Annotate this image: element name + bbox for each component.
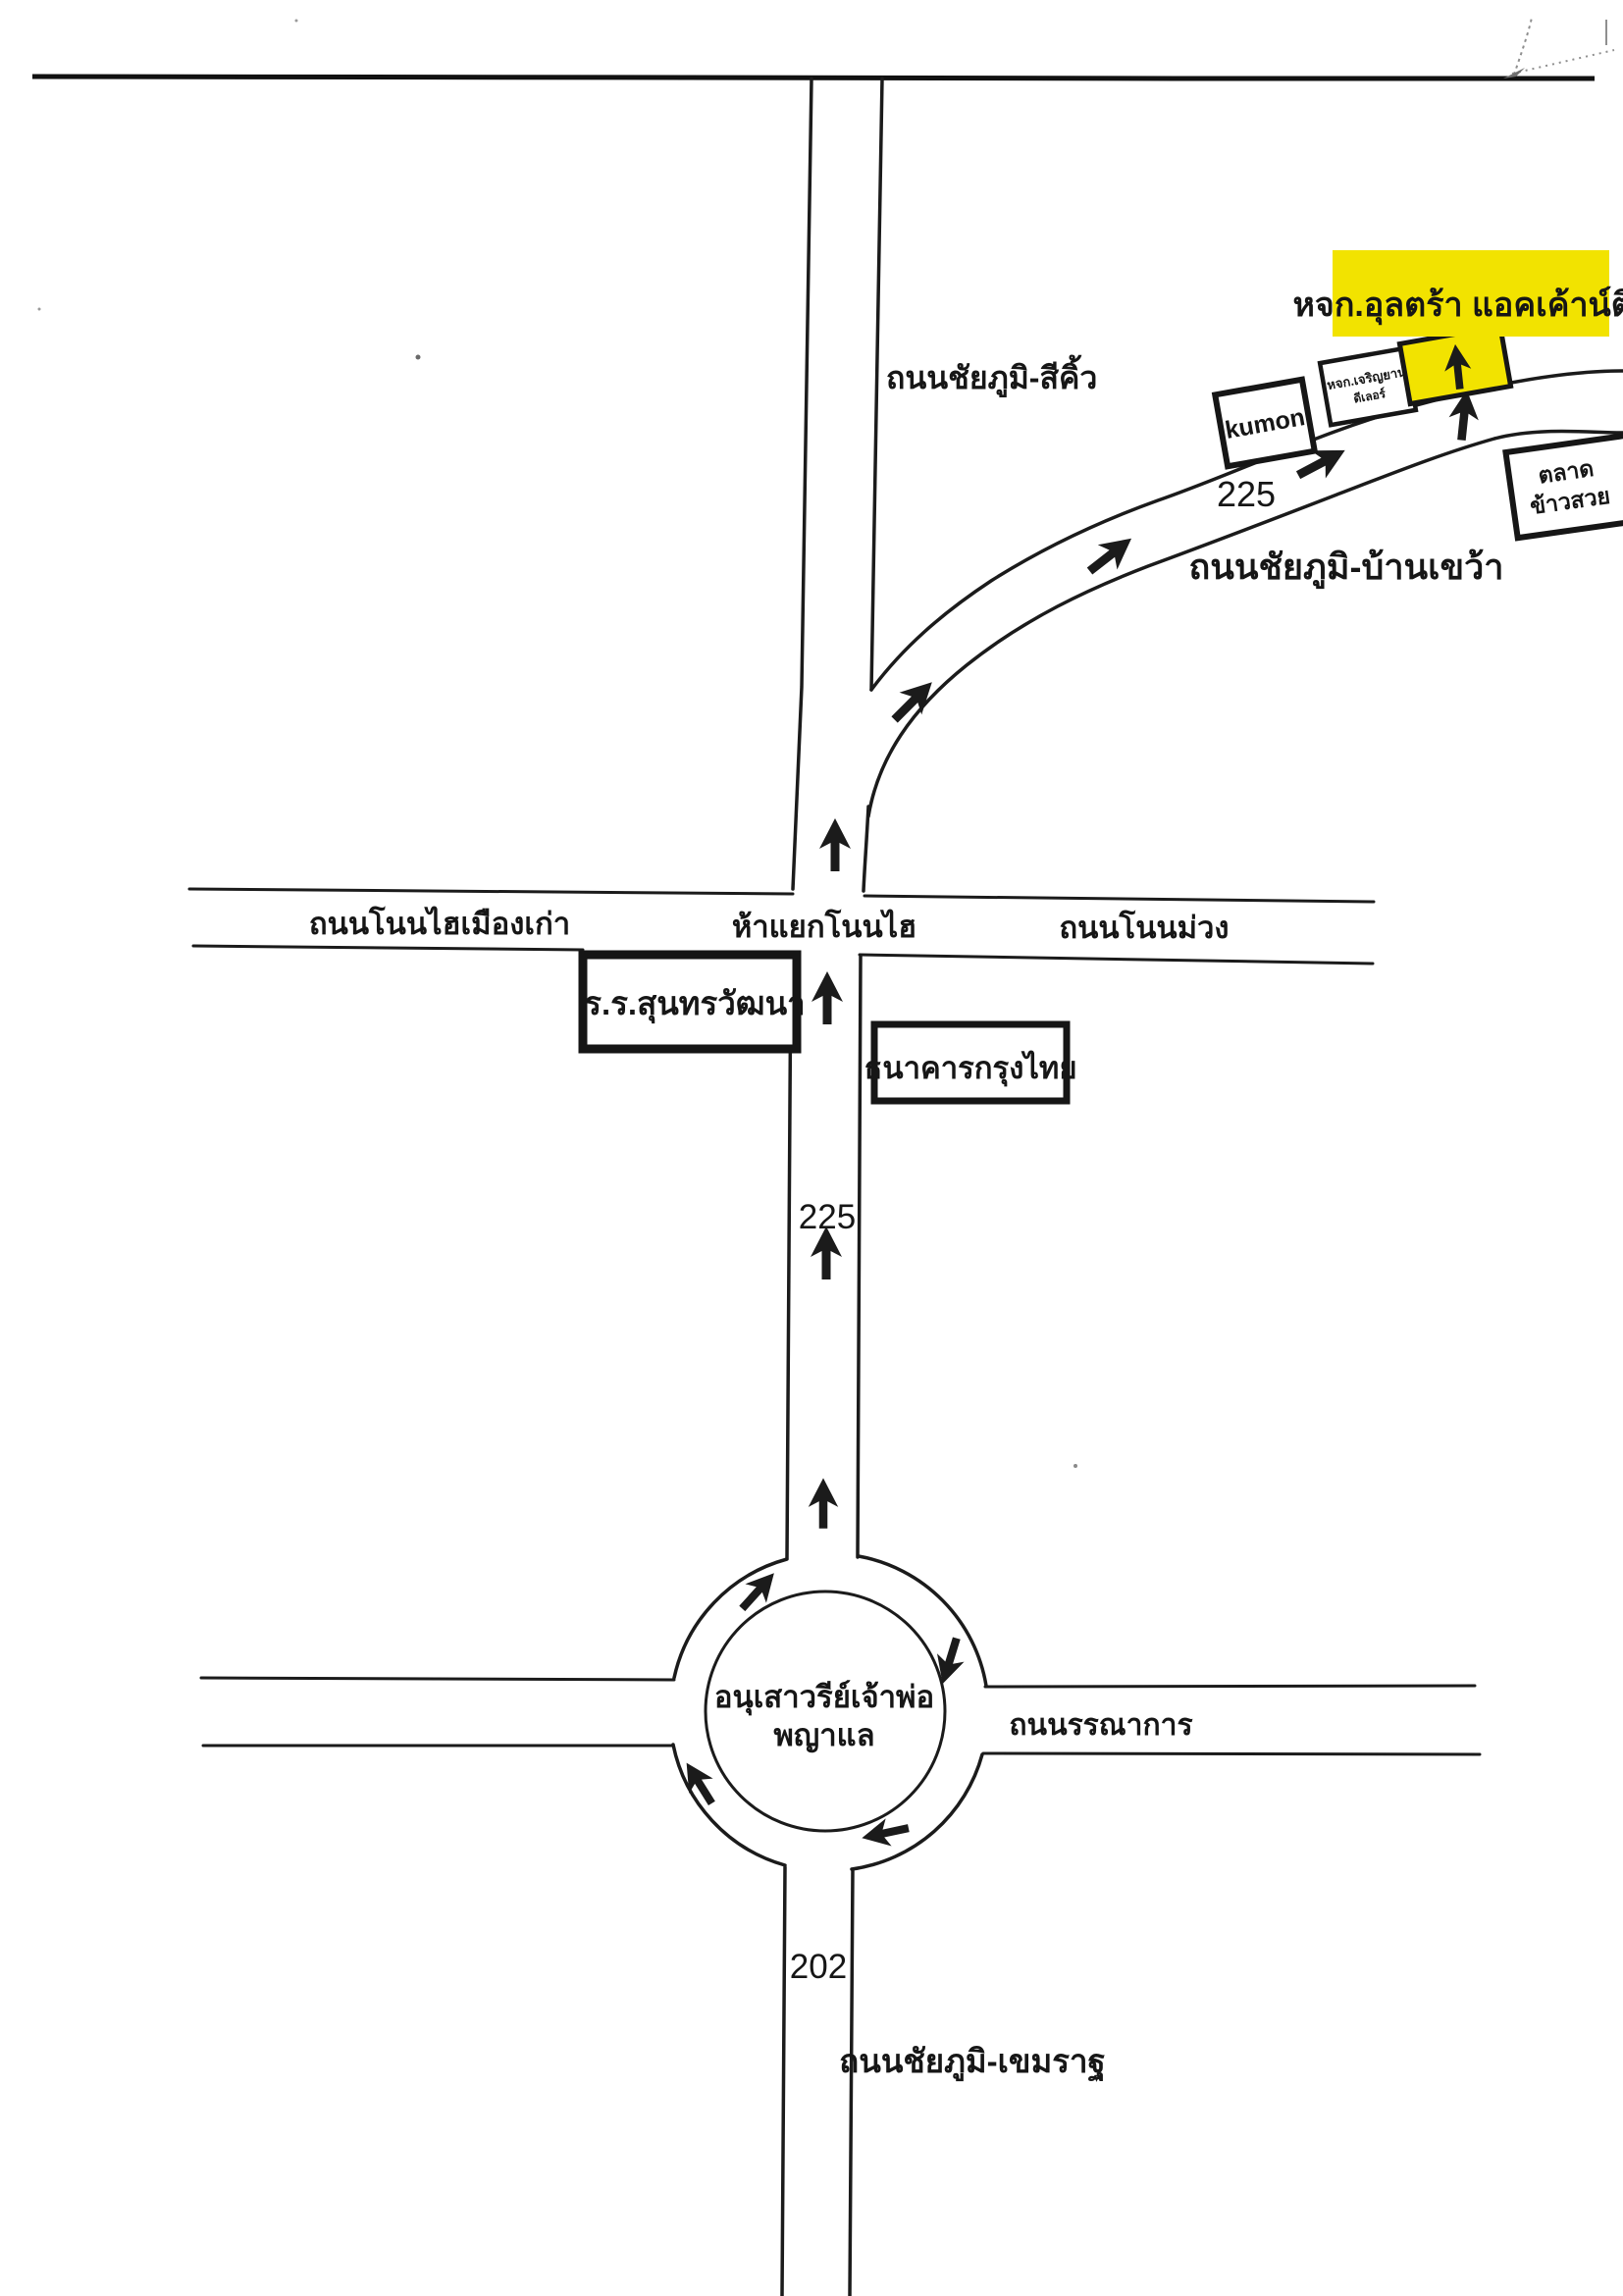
- map-canvas: kumon หจก.เจริญยาน ดีเลอร์ ตลาด ข้าวสวย …: [0, 0, 1623, 2296]
- page-top-border: [32, 77, 1595, 78]
- road-roundabout-west: [201, 1678, 674, 1746]
- route-arrow-school: [811, 971, 843, 1024]
- road-vertical-south: [782, 1867, 853, 2296]
- road-label-nonhai-muangkao: ถนนโนนไฮเมืองเก่า: [309, 906, 570, 941]
- school-label: ร.ร.สุนทรวัฒนา: [584, 985, 805, 1024]
- scanned-map-page: kumon หจก.เจริญยาน ดีเลอร์ ตลาด ข้าวสวย …: [0, 0, 1623, 2296]
- scan-speck: [416, 355, 421, 360]
- route-number-225-top: 225: [1217, 474, 1276, 514]
- road-label-khemarat: ถนนชัยภูมิ-เขมราฐ: [839, 2043, 1105, 2082]
- monument-label-line2: พญาแล: [773, 1718, 874, 1753]
- scan-speck: [38, 308, 41, 311]
- building-market: ตลาด ข้าวสวย: [1505, 436, 1623, 539]
- route-number-225-mid: 225: [799, 1198, 856, 1236]
- bank-label: ธนาคารกรุงไทย: [864, 1050, 1076, 1087]
- label-hayaek-nonhai: ห้าแยกโนนไฮ: [732, 909, 916, 944]
- roundabout-arrow-s: [859, 1814, 912, 1852]
- page-curl-scribble: [1503, 18, 1614, 78]
- route-arrow-up: [819, 818, 851, 871]
- destination-label: หจก.อุลตร้า แอคเค้าน์ติง: [1293, 286, 1623, 326]
- route-arrow-curve-1: [883, 671, 943, 731]
- road-vertical-north: [793, 78, 882, 891]
- scan-speck: [295, 20, 298, 23]
- scan-speck: [1073, 1464, 1077, 1468]
- building-kumon: kumon: [1215, 380, 1314, 467]
- route-number-202: 202: [790, 1948, 847, 1986]
- building-destination: [1399, 326, 1510, 403]
- road-label-bannakan: ถนนรรณาการ: [1009, 1709, 1192, 1742]
- route-arrow-pre-roundabout: [809, 1478, 838, 1528]
- road-label-non-muang: ถนนโนนม่วง: [1059, 910, 1229, 945]
- monument-label-line1: อนุเสาวรีย์เจ้าพ่อ: [714, 1680, 934, 1716]
- building-bank: ธนาคารกรุงไทย: [864, 1024, 1076, 1101]
- route-arrow-curve-2: [1080, 526, 1141, 583]
- road-label-sikhiu: ถนนชัยภูมิ-สีคิ้ว: [886, 354, 1097, 398]
- building-school: ร.ร.สุนทรวัฒนา: [583, 955, 806, 1049]
- destination-name-tag: หจก.อุลตร้า แอคเค้าน์ติง: [1293, 250, 1623, 337]
- road-label-bankhwao: ถนนชัยภูมิ-บ้านเขว้า: [1188, 547, 1503, 590]
